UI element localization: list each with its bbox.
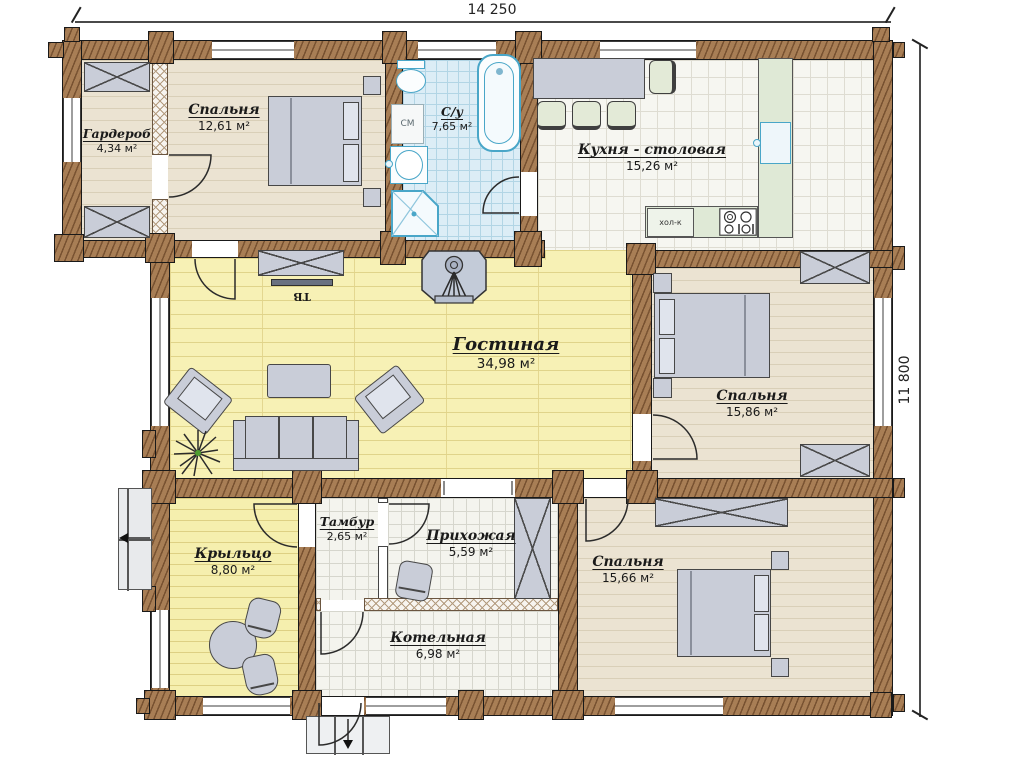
nightstand (653, 273, 672, 293)
window-porch-west (151, 610, 169, 688)
wall-lower-mid (150, 478, 893, 498)
room-name: Кухня - столовая (578, 142, 726, 158)
room-area: 12,61 м² (188, 119, 259, 133)
chair (537, 101, 566, 130)
log-stub (458, 690, 484, 720)
room-label-bedroom3: Спальня 15,66 м² (592, 554, 663, 585)
door-arc-bedroom3 (585, 498, 629, 542)
window-wardrobe (63, 98, 81, 162)
washing-machine-label: СМ (391, 104, 424, 144)
toilet-tank-icon (397, 60, 425, 69)
dining-table (533, 58, 645, 99)
door-arc-porch (253, 503, 298, 548)
room-name: Спальня (592, 554, 663, 570)
kitchen-sink-icon (760, 122, 791, 164)
door-arc-vestibule-hallway (388, 503, 430, 545)
window-kitchen (600, 41, 696, 59)
window-bedroom3 (615, 697, 723, 715)
pillow (659, 299, 675, 335)
log-stub (626, 243, 656, 275)
floor-plan: СМ хол-к ТВ (0, 0, 1018, 758)
partition-vest-hall-bottom (378, 546, 388, 602)
room-name: Тамбур (320, 514, 375, 529)
blanket-fold (744, 295, 746, 376)
door-arc-bedroom2 (652, 414, 698, 460)
partition-vest-hall-top (378, 498, 388, 503)
log-stub (514, 231, 542, 267)
window-boiler (366, 697, 446, 715)
sofa-cushion (245, 416, 279, 460)
sofa-back (233, 458, 359, 471)
log-stub (626, 470, 658, 504)
sofa-arm (233, 420, 246, 462)
log-stub (893, 42, 905, 58)
tv-icon (271, 279, 333, 286)
tv-cabinet (258, 250, 344, 276)
window-bedroom1 (212, 41, 294, 59)
hallway-wardrobe (514, 498, 551, 599)
kitchen-faucet-icon (753, 139, 761, 147)
log-stub (870, 692, 892, 718)
living-floor-opening-patch (545, 250, 632, 260)
closet-icon (800, 444, 870, 477)
sink-basin (395, 150, 423, 180)
room-area: 4,34 м² (83, 142, 151, 155)
plant-icon (172, 428, 224, 478)
dimension-line-right (919, 45, 921, 717)
nightstand (653, 378, 672, 398)
room-name: Спальня (716, 388, 787, 404)
log-stub (142, 430, 156, 458)
stove-icon (719, 208, 757, 236)
room-area: 34,98 м² (453, 356, 560, 372)
room-label-wardrobe: Гардероб 4,34 м² (83, 126, 151, 155)
pillow (754, 575, 769, 612)
room-label-kitchen: Кухня - столовая 15,26 м² (578, 142, 726, 173)
dimension-line-top (75, 21, 891, 23)
chair (607, 101, 636, 130)
closet-icon (84, 206, 150, 238)
closet-icon (84, 62, 150, 92)
room-name: Гардероб (83, 126, 151, 141)
toilet-icon (396, 69, 426, 93)
partition-hall-boiler-left (316, 598, 321, 611)
log-stub (552, 470, 584, 504)
door-arc-boiler (320, 611, 364, 655)
log-stub (292, 470, 322, 504)
room-area: 6,98 м² (390, 647, 486, 661)
chair (572, 101, 601, 130)
room-area: 5,59 м² (426, 545, 515, 559)
room-label-boiler: Котельная 6,98 м² (390, 630, 486, 661)
room-name: С/у (432, 104, 473, 119)
bathtub-drain (496, 68, 503, 75)
log-stub (148, 31, 174, 64)
log-stub (64, 27, 80, 42)
room-name: Прихожая (426, 528, 515, 544)
closet-icon (800, 251, 870, 284)
door-arc-bedroom1-wardrobe (168, 154, 212, 198)
pouf-line (398, 586, 425, 593)
room-name: Спальня (188, 102, 259, 118)
door-gap (521, 172, 537, 216)
log-stub (552, 690, 584, 720)
room-area: 8,80 м² (195, 563, 272, 577)
pouf (394, 559, 434, 602)
door-arc-bathroom (482, 176, 520, 214)
room-name: Котельная (390, 630, 486, 646)
chair-back-line (248, 625, 272, 633)
sofa-cushion (313, 416, 347, 460)
pillow (343, 102, 359, 140)
room-area: 15,86 м² (716, 405, 787, 419)
room-label-hallway: Прихожая 5,59 м² (426, 528, 515, 559)
log-stub (136, 698, 150, 714)
threshold-mark (511, 481, 513, 495)
tv-label: ТВ (289, 288, 315, 303)
room-label-living: Гостиная 34,98 м² (453, 334, 560, 372)
shower-icon (391, 190, 439, 237)
room-label-bedroom1: Спальня 12,61 м² (188, 102, 259, 133)
nightstand (771, 658, 789, 677)
entry-arrow-west-icon (119, 531, 151, 545)
sofa-cushion (279, 416, 313, 460)
fridge-label: хол-к (647, 208, 694, 237)
pillow (754, 614, 769, 651)
nightstand (771, 551, 789, 570)
log-stub (893, 478, 905, 498)
log-stub (54, 234, 84, 262)
room-label-vestibule: Тамбур 2,65 м² (320, 514, 375, 543)
log-stub (872, 27, 890, 42)
door-gap (299, 501, 315, 547)
log-stub (892, 246, 905, 270)
room-area: 2,65 м² (320, 530, 375, 543)
chair-back-line (250, 682, 274, 689)
partition-hall-boiler-right (364, 598, 558, 611)
coffee-table (267, 364, 331, 398)
dimension-height-label: 11 800 (897, 354, 913, 406)
nightstand (363, 188, 381, 207)
fireplace-icon (421, 250, 487, 304)
nightstand (363, 76, 381, 95)
log-stub (893, 694, 905, 712)
blanket-fold (290, 98, 292, 184)
room-label-porch: Крыльцо 8,80 м² (195, 546, 272, 577)
door-gap (633, 414, 651, 461)
door-arc-bedroom1-living (194, 258, 236, 300)
blanket-fold (690, 571, 692, 655)
step-line (362, 717, 364, 755)
opening-hallway (441, 479, 515, 497)
faucet-icon (385, 160, 393, 168)
dimension-width-label: 14 250 (432, 2, 552, 18)
threshold-mark (443, 481, 445, 495)
closet-icon (655, 498, 788, 527)
pillow (343, 144, 359, 182)
wall-bedroom3-west (558, 498, 578, 696)
room-area: 15,66 м² (592, 571, 663, 585)
window-porch-south (203, 697, 290, 715)
door-gap (583, 479, 629, 497)
room-label-bathroom: С/у 7,65 м² (432, 104, 473, 133)
window-bedroom2 (874, 298, 892, 426)
room-area: 7,65 м² (432, 120, 473, 133)
room-label-bedroom2: Спальня 15,86 м² (716, 388, 787, 419)
sofa (233, 416, 359, 471)
room-area: 15,26 м² (578, 159, 726, 173)
window-living (151, 298, 169, 426)
door-gap (192, 241, 238, 257)
partition-wardrobe-top (152, 60, 168, 155)
log-stub (48, 42, 64, 58)
chair (649, 60, 676, 94)
room-name: Крыльцо (195, 546, 272, 562)
room-name: Гостиная (453, 334, 560, 355)
sofa-arm (346, 420, 359, 462)
door-arc-boiler-exterior (318, 702, 362, 746)
pillow (659, 338, 675, 374)
